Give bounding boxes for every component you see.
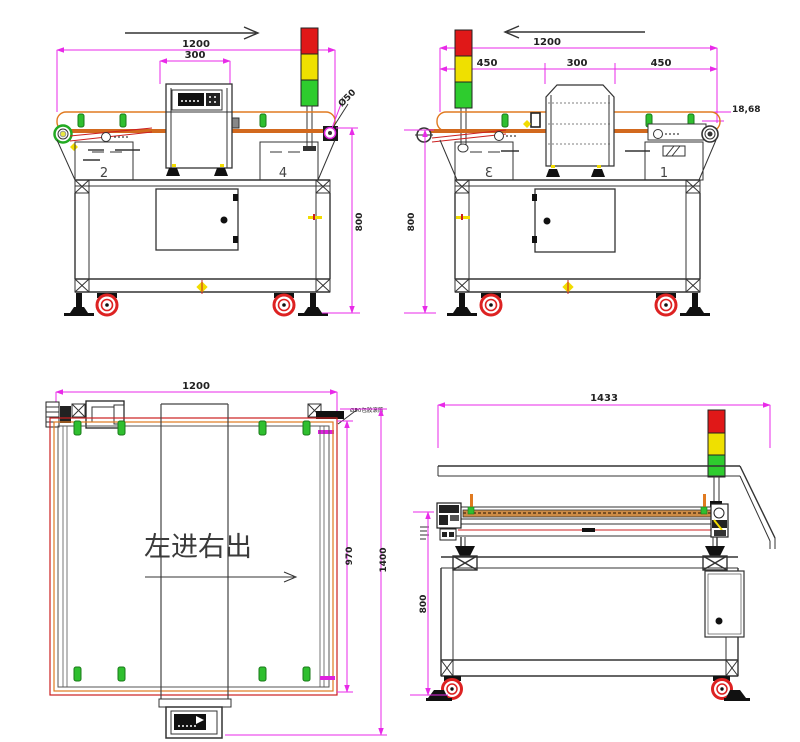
panel-number-3-mirrored: 3 (485, 166, 493, 181)
caster-wheels (447, 293, 710, 316)
dim-height-label: 800 (407, 213, 417, 232)
metal-detector-head-outline (546, 85, 614, 177)
dim-height-label: 800 (419, 595, 429, 614)
dim-length-label: 1200 (182, 381, 210, 392)
dim-height-label: 800 (355, 213, 365, 232)
technical-drawing: 1200 300 (0, 0, 800, 742)
tail-roller: Ø50 (323, 87, 358, 141)
caster-wheels (64, 293, 328, 316)
dim-detector-label: 300 (185, 50, 206, 61)
dim-length-label: 1200 (182, 39, 210, 50)
dim-detector-label: 300 (567, 58, 588, 69)
side-view-right: 1200 450 300 450 18,68 (404, 26, 760, 316)
front-view: 1433 (410, 393, 775, 701)
flow-arrow-left-icon (505, 26, 645, 38)
door-handle (544, 218, 551, 225)
dim-length-label: 1200 (533, 37, 561, 48)
caster-wheels-front (426, 676, 750, 701)
control-panel (159, 699, 231, 738)
roller-note-label: Ø50包胶滚筒 (350, 406, 384, 414)
dim-outfeed-label: 450 (651, 58, 672, 69)
electrical-cabinet (156, 189, 238, 250)
top-view: 1200 Ø50包胶滚筒 (46, 381, 389, 738)
electrical-cabinet-front (705, 571, 744, 637)
dim-infeed-label: 450 (477, 58, 498, 69)
dim-belt-width-label: 970 (345, 547, 355, 566)
door-handle (716, 618, 723, 625)
side-view-left: 1200 300 (55, 27, 366, 316)
conveyor-bed-front (455, 494, 716, 536)
bed-supports (453, 537, 727, 570)
panel-number-2: 2 (100, 166, 108, 181)
flow-note-label: 左进右出 (144, 532, 252, 563)
dim-length-label: 1433 (590, 393, 618, 404)
signal-tower-light (708, 410, 725, 507)
drive-assembly (625, 124, 718, 156)
roller-diameter-label: Ø50 (336, 87, 358, 109)
dim-overall-width-label: 1400 (379, 547, 389, 572)
flow-arrow-right-icon (145, 572, 296, 582)
panel-number-4: 4 (279, 166, 287, 181)
machine-frame-front (441, 557, 738, 676)
metal-detector-head (166, 84, 232, 176)
flow-arrow-right-icon (125, 27, 258, 39)
end-roller-front (711, 504, 728, 537)
panel-number-1: 1 (660, 166, 668, 181)
electrical-cabinet (532, 189, 615, 252)
door-handle (221, 217, 228, 224)
drawing-canvas: 1200 300 (0, 0, 800, 742)
drive-motor (46, 401, 124, 428)
belt-motor-front (420, 503, 461, 540)
dim-belt-offset-label: 18,68 (732, 105, 760, 115)
